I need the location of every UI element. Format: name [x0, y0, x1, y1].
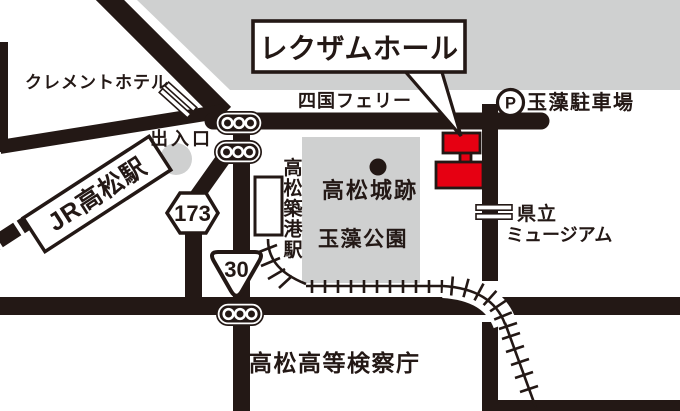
route-173-badge: 173	[167, 193, 218, 233]
building-lower	[436, 162, 483, 188]
callout-label: レクザムホール	[260, 33, 459, 64]
traffic-light-icon	[216, 302, 264, 326]
hotel-label: クレメントホテル	[25, 73, 169, 92]
tamamo-park-area	[302, 137, 420, 283]
road-main-horizontal	[0, 297, 680, 315]
chikko-station-box	[255, 177, 282, 235]
road-bottom-right	[482, 400, 680, 411]
chikko-station-label: 高松築港駅	[282, 156, 303, 261]
access-map: JR高松駅	[0, 0, 680, 411]
traffic-light-icon	[214, 140, 262, 164]
exit-label: 出入口	[150, 128, 213, 149]
parking-lot-label: 玉藻駐車場	[527, 90, 635, 114]
ferry-label: 四国フェリー	[298, 91, 412, 111]
castle-label: 高松城跡	[322, 178, 418, 203]
route-30-label: 30	[224, 257, 248, 282]
traffic-light-icon	[215, 111, 263, 135]
prosecutors-office-label: 高松高等検察庁	[249, 350, 421, 376]
route-173-label: 173	[174, 201, 211, 226]
parking-p-label: P	[505, 95, 516, 113]
road-left-edge-stub	[0, 42, 8, 152]
road-vertical-east-lower	[482, 322, 498, 406]
castle-dot	[370, 159, 387, 176]
road-vertical-east-upper	[482, 104, 498, 281]
park-label: 玉藻公園	[318, 228, 408, 251]
museum-label-line1: 県立	[517, 202, 557, 225]
museum-label-line2: ミュージアム	[506, 225, 612, 245]
